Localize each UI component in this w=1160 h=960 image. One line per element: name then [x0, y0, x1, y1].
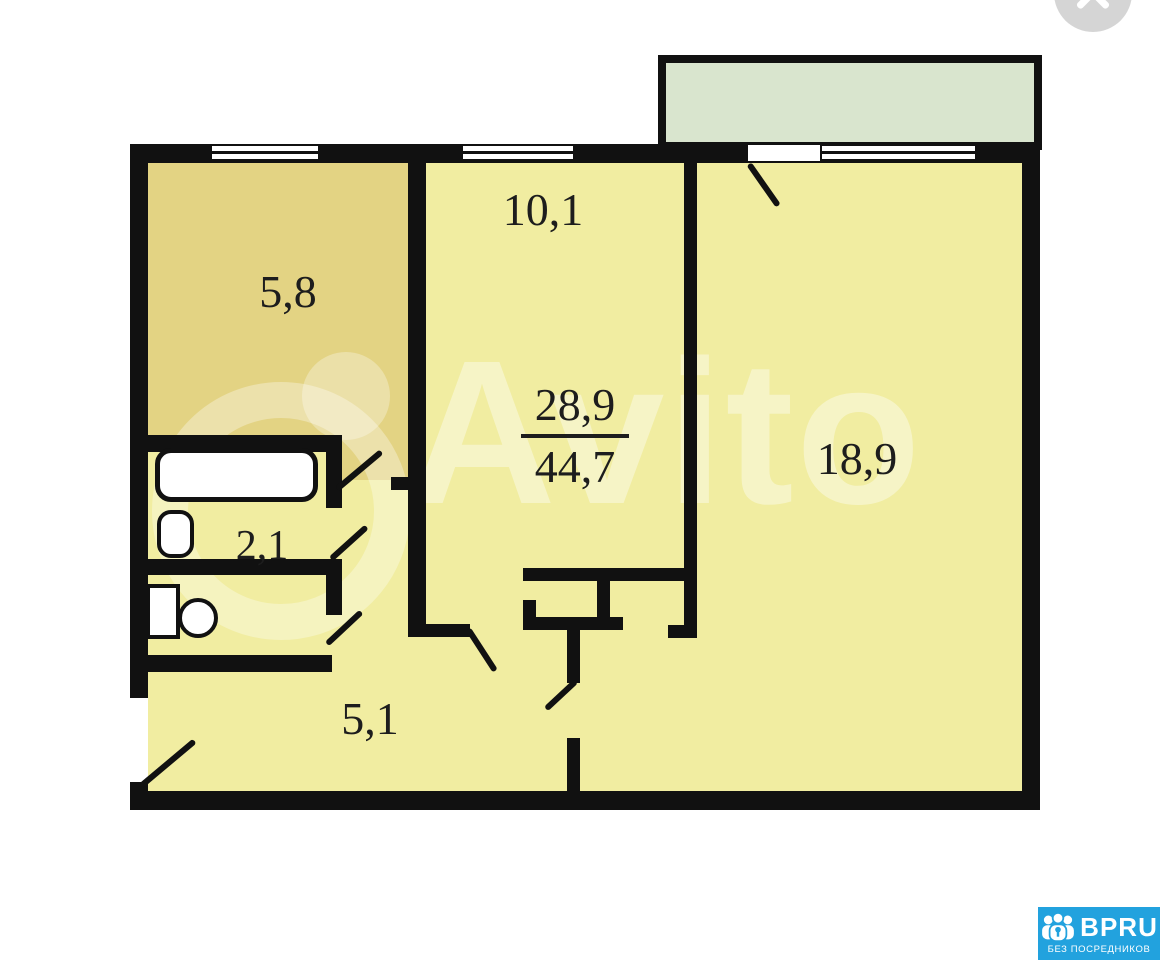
wall	[523, 600, 536, 630]
wall	[1022, 144, 1040, 810]
living-area-label: 28,9	[535, 378, 616, 431]
wall	[326, 435, 342, 508]
floor-plan: Avito 5,8 10,1 18,9 2,1 5,1 28,9 4	[0, 0, 1160, 960]
badge-brand: BPRU	[1080, 914, 1158, 940]
total-area-label: 44,7	[535, 440, 616, 493]
bathroom-area-label: 2,1	[212, 522, 312, 570]
room-large-area-label: 18,9	[797, 432, 917, 485]
wall	[668, 625, 697, 638]
toilet-tank	[146, 584, 180, 639]
people-group-icon	[1040, 912, 1076, 942]
badge-tagline: БЕЗ ПОСРЕДНИКОВ	[1048, 944, 1151, 955]
balcony-door-opening	[748, 145, 820, 161]
wall-kitchen-room	[408, 163, 426, 637]
room-small-window	[463, 146, 573, 159]
kitchen-window	[212, 146, 318, 159]
fraction-bar	[521, 434, 629, 438]
wall	[326, 575, 342, 615]
wall	[391, 477, 408, 490]
wall	[567, 630, 580, 683]
wall	[130, 791, 1040, 810]
area-summary: 28,9 44,7	[513, 378, 637, 493]
photo-viewer: { "viewer": { "close_icon": "x" }, "wate…	[0, 0, 1160, 960]
wall-closet-top	[523, 568, 695, 581]
kitchen-area-label: 5,8	[238, 265, 338, 318]
balcony	[658, 55, 1042, 150]
entrance-opening	[130, 698, 148, 782]
bathtub	[155, 448, 318, 502]
room-small-area-label: 10,1	[483, 183, 603, 236]
wall-hallway-room	[567, 738, 580, 800]
balcony-window	[822, 146, 975, 159]
wall-rooms-divider	[684, 163, 697, 625]
sink	[157, 510, 194, 558]
wall-toilet-bottom	[130, 655, 332, 672]
hallway-area-label: 5,1	[310, 692, 430, 745]
toilet-bowl	[178, 598, 218, 638]
wall	[408, 624, 470, 637]
bpru-badge: BPRU БЕЗ ПОСРЕДНИКОВ	[1038, 907, 1160, 960]
wall-closet-bottom	[523, 617, 623, 630]
